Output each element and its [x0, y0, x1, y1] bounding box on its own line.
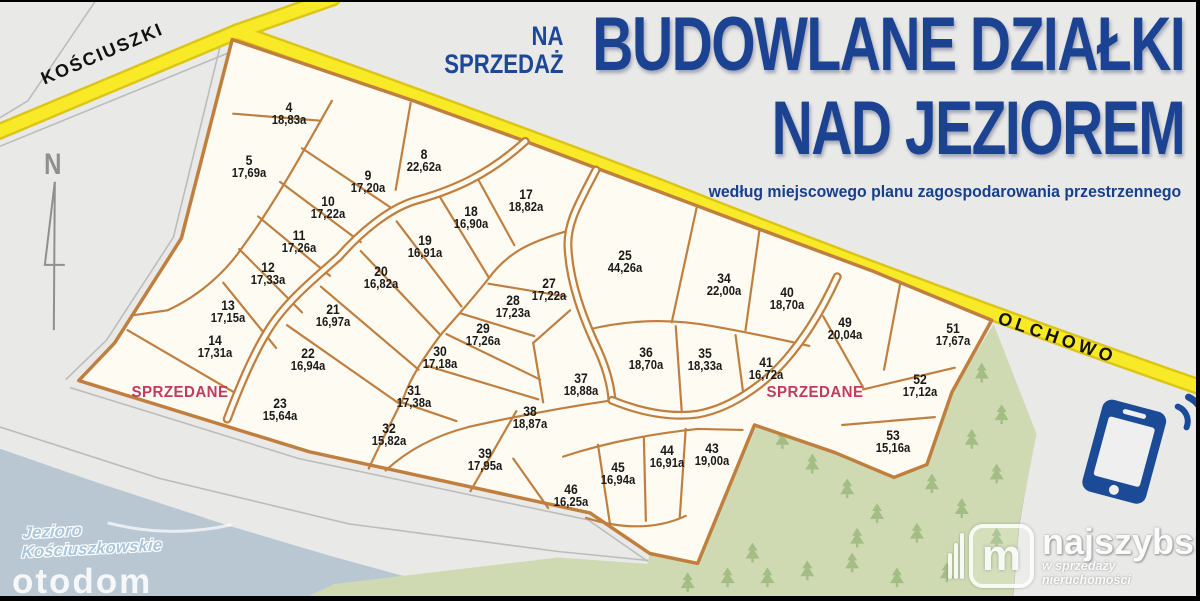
logo-name: najszybsi [1042, 525, 1200, 559]
title-subtitle: według miejscowego planu zagospodarowani… [708, 182, 1181, 202]
agency-logo: m najszybsi w sprzedaży nieruchomości [948, 524, 1200, 588]
logo-monogram-icon: m [969, 524, 1034, 588]
title-prefix: NA SPRZEDAŻ [445, 22, 564, 78]
north-label: N [44, 148, 61, 182]
title-prefix-line1: NA [445, 22, 564, 50]
otodom-watermark: otodom [12, 562, 152, 601]
title-line1: BUDOWLANE DZIAŁKI [592, 4, 1184, 86]
flyer-canvas: NA SPRZEDAŻ BUDOWLANE DZIAŁKI NAD JEZIOR… [0, 0, 1200, 601]
logo-monogram-letter: m [982, 534, 1021, 578]
lake-label: Jezioro Kościuszkowskie [21, 516, 164, 562]
logo-pages-icon [948, 533, 966, 579]
logo-tagline: w sprzedaży nieruchomości [1042, 559, 1200, 587]
title-prefix-line2: SPRZEDAŻ [445, 50, 564, 78]
title-line2: NAD JEZIOREM [771, 88, 1184, 170]
